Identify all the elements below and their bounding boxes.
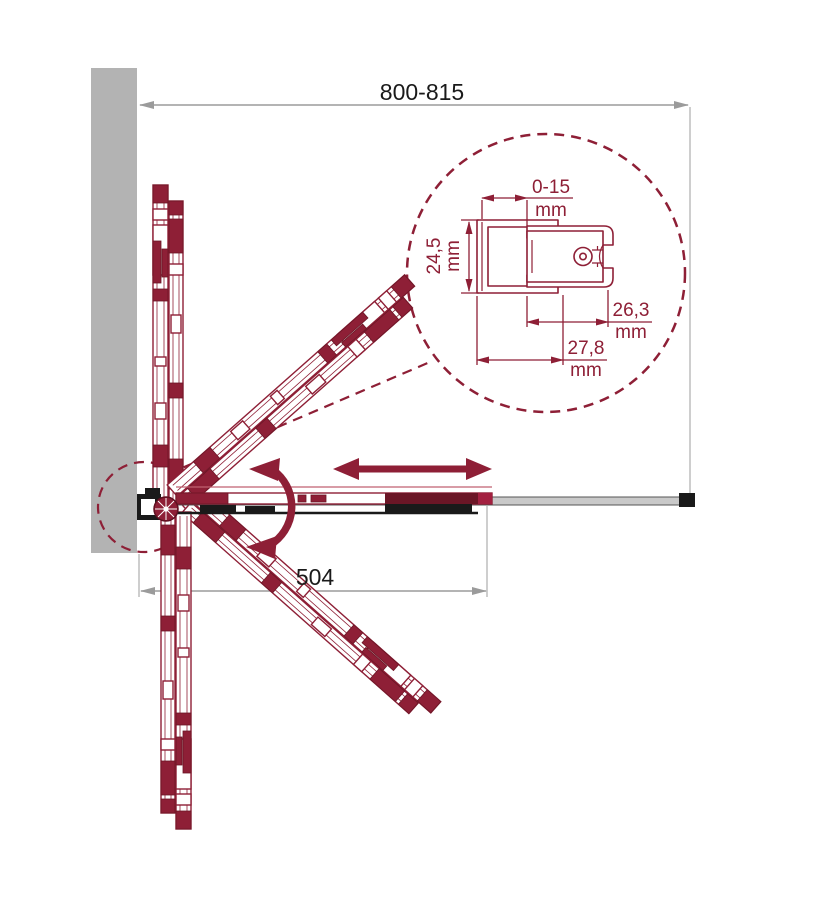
rail-end-cap	[679, 493, 695, 507]
adjustment-range-unit: mm	[535, 200, 567, 221]
pivot-hub	[154, 497, 178, 521]
outer-depth-value: 27,8	[568, 338, 605, 359]
overall-width-label: 800-815	[380, 79, 464, 105]
folded-panel-upper-diagonal	[166, 275, 425, 509]
outer-depth-dimension: 27,8 mm	[477, 295, 607, 381]
folded-panel-down	[161, 510, 191, 829]
profile-detail-view: 0-15 mm 24,5 mm 26,3 mm 27,8 mm	[424, 177, 652, 381]
folded-panel-lower-diagonal	[182, 490, 441, 724]
profile-height-value: 24,5	[424, 238, 445, 275]
outer-depth-unit: mm	[570, 360, 602, 381]
technical-drawing-page: 800-815	[0, 0, 832, 900]
inner-depth-dimension: 26,3 mm	[527, 290, 652, 343]
inner-depth-value: 26,3	[613, 300, 650, 321]
profile-height-unit: mm	[443, 240, 464, 272]
adjustment-range-value: 0-15	[532, 177, 570, 198]
door-profile-section	[527, 226, 613, 287]
profile-height-dimension: 24,5 mm	[424, 220, 479, 293]
slide-arrow-icon	[333, 458, 492, 480]
roller-carriage-left	[200, 505, 236, 512]
inner-depth-unit: mm	[615, 322, 647, 343]
wall	[91, 68, 137, 553]
folded-panel-up	[153, 185, 183, 504]
drawing-canvas: 800-815	[0, 0, 832, 900]
open-door-assembly	[176, 487, 695, 514]
opening-width-label: 504	[296, 564, 335, 590]
adjustment-range-dimension: 0-15 mm	[482, 177, 573, 226]
